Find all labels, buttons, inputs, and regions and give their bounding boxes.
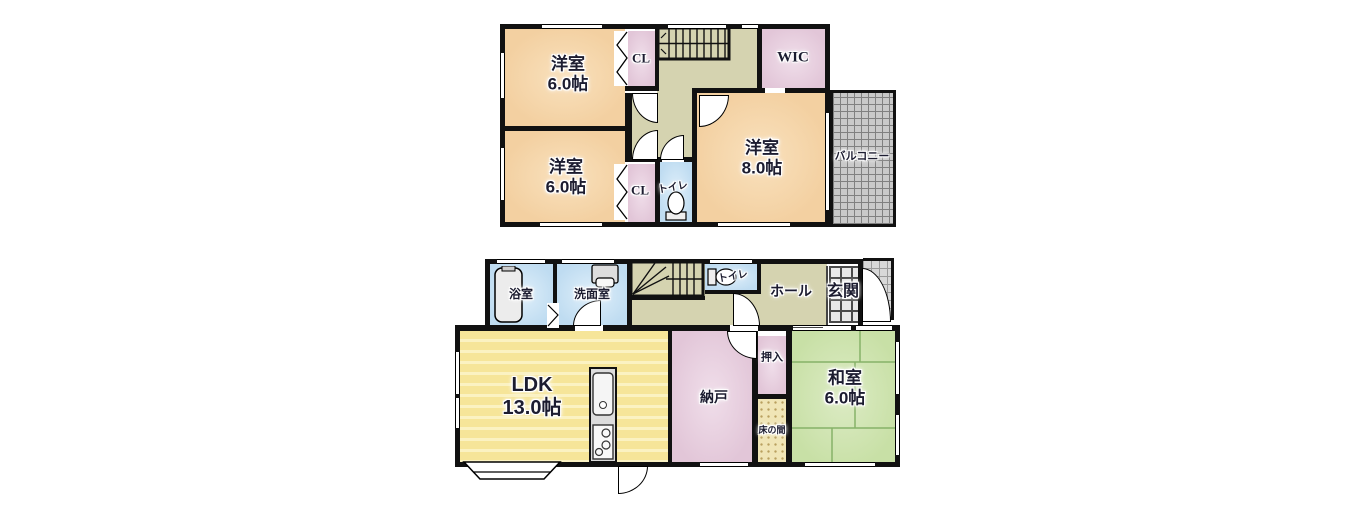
sink-icon — [591, 264, 619, 288]
window — [700, 462, 748, 467]
room-name: 洋室 — [742, 138, 783, 158]
wall — [625, 86, 659, 91]
room-name: 和室 — [825, 368, 866, 388]
window — [500, 53, 505, 98]
window — [895, 342, 900, 394]
sliding-door-line — [793, 327, 823, 328]
floorplan-canvas: 洋室 6.0帖 CL WIC 洋室 6.0帖 CL トイレ 洋室 8.0帖 バル… — [0, 0, 1348, 518]
window — [805, 462, 875, 467]
room-area: 13.0帖 — [503, 397, 562, 420]
closet-label: CL — [632, 52, 650, 67]
bath-folding-door-icon — [543, 303, 563, 328]
window — [710, 259, 752, 264]
bay-outline — [464, 462, 560, 479]
staircase-1f — [629, 260, 707, 300]
storage-label: 納戸 — [700, 389, 728, 405]
window — [542, 24, 602, 29]
toilet-bowl — [668, 192, 684, 214]
washitsu-label: 和室 6.0帖 — [825, 368, 866, 407]
window — [856, 325, 892, 331]
window — [455, 398, 460, 428]
washitsu-sliding-door — [793, 325, 823, 331]
sink-bowl — [596, 278, 614, 287]
closet-label: CL — [631, 184, 649, 199]
wall — [625, 93, 632, 157]
window — [500, 148, 505, 200]
wall — [627, 296, 705, 300]
window — [540, 222, 602, 227]
floor1-ldk — [460, 331, 668, 462]
room-name: LDK — [503, 374, 562, 397]
balcony-label: バルコニー — [835, 151, 890, 164]
staircase-2f — [656, 26, 732, 64]
window — [823, 325, 851, 331]
bath-label: 浴室 — [509, 288, 533, 302]
washroom-label: 洗面室 — [574, 288, 610, 302]
room-area: 8.0帖 — [742, 158, 783, 178]
room-label: 洋室 6.0帖 — [548, 54, 589, 93]
wic-label: WIC — [777, 49, 809, 66]
kitchen-sink-icon — [592, 372, 614, 416]
window — [562, 259, 614, 264]
tokonoma-label: 床の間 — [758, 425, 785, 435]
window — [742, 24, 758, 29]
entrance-label: 玄関 — [827, 283, 859, 301]
window — [718, 222, 790, 227]
hall-label: ホール — [770, 283, 812, 299]
room-label: 洋室 6.0帖 — [546, 157, 587, 196]
ldk-label: LDK 13.0帖 — [503, 374, 562, 420]
kitchen-stove-icon — [592, 424, 614, 460]
window — [455, 352, 460, 394]
room-area: 6.0帖 — [548, 74, 589, 94]
toilet-tank — [708, 269, 716, 285]
drain — [600, 402, 607, 409]
room-label: 洋室 8.0帖 — [742, 138, 783, 177]
window — [895, 415, 900, 455]
bay-window — [460, 460, 564, 484]
window — [668, 24, 726, 29]
window — [497, 259, 545, 264]
room-area: 6.0帖 — [825, 388, 866, 408]
folding-door-icon — [614, 164, 628, 220]
floor1-oshiire — [758, 336, 786, 394]
room-name: 洋室 — [548, 54, 589, 74]
room-area: 6.0帖 — [546, 177, 587, 197]
room-name: 洋室 — [546, 157, 587, 177]
oshiire-label: 押入 — [761, 352, 783, 365]
door-arc — [618, 466, 648, 494]
folding-door-icon — [614, 31, 628, 86]
bath-faucet — [502, 266, 515, 271]
